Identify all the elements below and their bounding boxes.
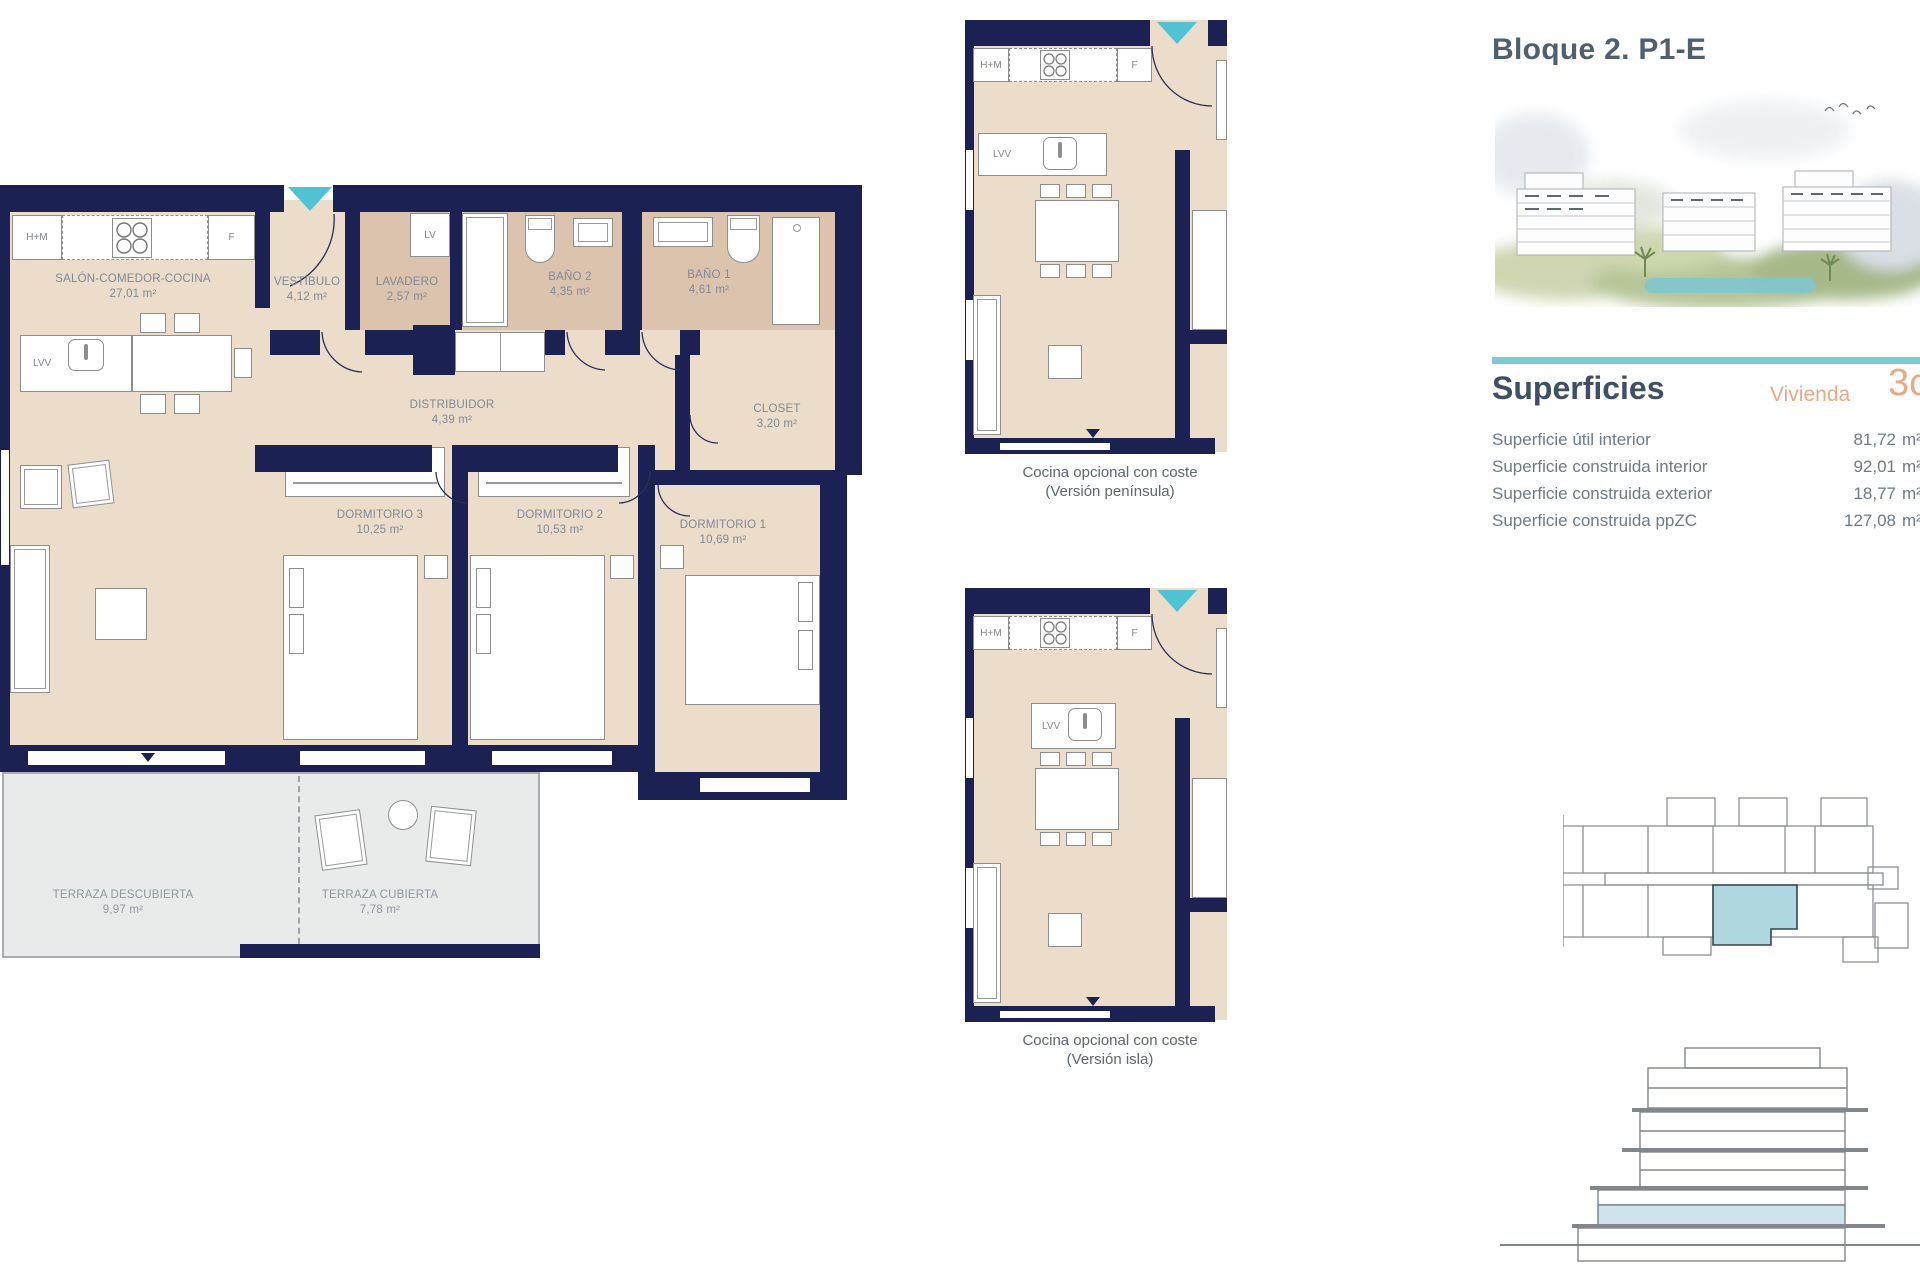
stove-icon [1040, 50, 1070, 80]
entrance-marker-icon [1157, 590, 1197, 612]
room-name: BAÑO 2 [548, 270, 591, 285]
chair [1040, 184, 1060, 198]
wall [1208, 588, 1227, 614]
window [966, 868, 973, 928]
room-area: 7,78 m² [322, 903, 439, 918]
washer-dryer-label: H+M [26, 232, 47, 243]
view-arrow-icon [141, 753, 155, 762]
stove-icon [112, 218, 152, 258]
coffee-table [1048, 345, 1082, 379]
washer-dryer-label: H+M [980, 60, 1001, 71]
wall [452, 445, 468, 772]
sofa [10, 545, 50, 693]
room-name: TERRAZA DESCUBIERTA [53, 888, 194, 903]
toilet [727, 215, 760, 263]
entrance-marker-icon [288, 187, 332, 211]
wall [1175, 898, 1227, 912]
room-label-vestibulo: VESTÍBULO4,12 m² [274, 275, 340, 305]
superficie-row-unit: m² [1902, 484, 1920, 504]
room-area: 10,69 m² [680, 533, 767, 548]
sofa [973, 863, 1001, 1003]
superficie-row-label: Superficie construida ppZC [1492, 511, 1697, 531]
chair [1040, 832, 1060, 846]
wardrobe-line [486, 482, 622, 484]
room-area: 4,35 m² [548, 285, 591, 300]
dining-table [1035, 200, 1119, 262]
fridge-label: F [228, 232, 234, 243]
pillow [798, 630, 813, 670]
caption-line1: Cocina opcional con coste [1022, 1031, 1197, 1050]
highlighted-floor [1598, 1205, 1845, 1226]
accent-rule [1492, 357, 1920, 364]
dining-table [1035, 768, 1119, 830]
page-title: Bloque 2. P1-E [1492, 33, 1706, 67]
option-plan-caption: Cocina opcional con coste (Versión isla) [1022, 1031, 1197, 1069]
window [966, 150, 973, 210]
room-label-lavadero: LAVADERO2,57 m² [376, 275, 439, 305]
chair [1040, 752, 1060, 766]
window [1, 450, 9, 565]
room-label-dorm2: DORMITORIO 210,53 m² [517, 508, 604, 538]
view-arrow-icon [1086, 429, 1100, 438]
nightstand [424, 555, 448, 579]
wall [1208, 20, 1227, 46]
bathtub [772, 217, 820, 325]
bathroom-sink [653, 217, 713, 247]
brochure-page: H+M F LVV LV [0, 0, 1920, 1280]
vivienda-value: 3c [1888, 362, 1920, 405]
wall [605, 330, 640, 355]
room-name: CLOSET [753, 402, 800, 417]
chair [1066, 752, 1086, 766]
coffee-table [1048, 913, 1082, 947]
washing-machine-label: LV [424, 230, 436, 241]
storage-doors [455, 332, 545, 372]
dishwasher-label: LVV [993, 149, 1011, 160]
washer-dryer-box: H+M [12, 215, 62, 260]
washer-dryer-box: H+M [973, 616, 1009, 650]
wall [345, 212, 360, 330]
window [1000, 1011, 1110, 1018]
room-area: 10,25 m² [337, 523, 424, 538]
wall [835, 185, 862, 475]
fridge-box: F [1117, 616, 1152, 650]
room-name: DORMITORIO 1 [680, 518, 767, 533]
washer-dryer-label: H+M [980, 628, 1001, 639]
fridge-box: F [208, 215, 255, 260]
washer-dryer-box: H+M [973, 48, 1009, 82]
wall [1175, 718, 1190, 1020]
wall [655, 470, 847, 485]
fridge-box: F [1117, 48, 1152, 82]
chair [140, 394, 166, 414]
wall [675, 355, 690, 480]
key-plan-diagram [1563, 785, 1920, 990]
caption-line1: Cocina opcional con coste [1022, 463, 1197, 482]
dining-table [132, 335, 232, 392]
room-name: VESTÍBULO [274, 275, 340, 290]
fixture [1216, 628, 1227, 708]
room-label-closet: CLOSET3,20 m² [753, 402, 800, 432]
toilet [525, 215, 555, 263]
fridge-label: F [1131, 628, 1137, 639]
sofa [973, 295, 1001, 435]
window [300, 751, 425, 765]
room-area: 3,20 m² [753, 417, 800, 432]
window [28, 751, 225, 765]
room-label-terraza-descubierta: TERRAZA DESCUBIERTA9,97 m² [53, 888, 194, 918]
room-name: SALÓN-COMEDOR-COCINA [55, 272, 210, 287]
room-name: DORMITORIO 3 [337, 508, 424, 523]
room-name: LAVADERO [376, 275, 439, 290]
chair [1066, 264, 1086, 278]
chair [1066, 184, 1086, 198]
window [700, 778, 810, 792]
superficie-row-label: Superficie útil interior [1492, 430, 1651, 450]
building-rendering [1495, 85, 1920, 307]
terrace-chair [314, 809, 367, 871]
room-area: 4,61 m² [687, 283, 730, 298]
chair [174, 313, 200, 333]
sink-icon [1068, 708, 1102, 741]
wall [965, 588, 1150, 614]
dishwasher-label: LVV [33, 358, 51, 369]
room-area: 10,53 m² [517, 523, 604, 538]
room-label-dorm1: DORMITORIO 110,69 m² [680, 518, 767, 548]
vivienda-label: Vivienda [1770, 383, 1850, 407]
superficie-row-value: 18,77 [1768, 484, 1896, 504]
room-label-dorm3: DORMITORIO 310,25 m² [337, 508, 424, 538]
room-name: TERRAZA CUBIERTA [322, 888, 439, 903]
room-area: 4,39 m² [410, 413, 495, 428]
room-label-distribuidor: DISTRIBUIDOR4,39 m² [410, 398, 495, 428]
washing-machine-box: LV [410, 213, 450, 257]
highlighted-unit [1713, 885, 1797, 945]
wall [450, 212, 462, 330]
room-area: 4,12 m² [274, 290, 340, 305]
superficie-row-label: Superficie construida exterior [1492, 484, 1712, 504]
superficie-row-value: 92,01 [1768, 457, 1896, 477]
nightstand [610, 555, 634, 579]
room-label-bano1: BAÑO 14,61 m² [687, 268, 730, 298]
wardrobe-line [293, 482, 437, 484]
coffee-table [95, 588, 147, 640]
chair [140, 313, 166, 333]
chair [1066, 832, 1086, 846]
bathroom-sink [573, 218, 613, 247]
option-plan-caption: Cocina opcional con coste (Versión penín… [1022, 463, 1197, 501]
pillow [289, 614, 304, 654]
wall [270, 330, 320, 355]
pillow [476, 614, 491, 654]
chair [1092, 752, 1112, 766]
superficie-row-unit: m² [1902, 511, 1920, 531]
pillow [476, 568, 491, 608]
superficie-row-value: 127,08 [1768, 511, 1896, 531]
caption-line2: (Versión península) [1022, 482, 1197, 501]
window [966, 718, 973, 778]
wall [413, 325, 455, 375]
entrance-marker-icon [1157, 22, 1197, 44]
armchair [67, 460, 114, 509]
room-label-salon: SALÓN-COMEDOR-COCINA27,01 m² [55, 272, 210, 302]
superficie-row-unit: m² [1902, 457, 1920, 477]
chair [234, 348, 252, 378]
terrace-divider [298, 776, 300, 954]
wall [965, 20, 1150, 46]
view-arrow-icon [1086, 997, 1100, 1006]
wall [255, 445, 432, 472]
wall [0, 185, 284, 212]
room-area: 2,57 m² [376, 290, 439, 305]
wall [638, 445, 655, 800]
superficie-row-label: Superficie construida interior [1492, 457, 1707, 477]
wall [680, 330, 700, 355]
wall [1175, 330, 1227, 344]
pillow [289, 568, 304, 608]
sink-icon [1043, 137, 1077, 170]
wall [622, 185, 642, 330]
nightstand [660, 545, 684, 569]
pool [1645, 278, 1815, 293]
elevation-diagram [1500, 1045, 1920, 1280]
wall [545, 330, 565, 355]
room-area: 27,01 m² [55, 287, 210, 302]
room-label-terraza-cubierta: TERRAZA CUBIERTA7,78 m² [322, 888, 439, 918]
bed [1192, 778, 1227, 898]
window [966, 300, 973, 360]
bed [1192, 210, 1227, 330]
room-area: 9,97 m² [53, 903, 194, 918]
wall [820, 475, 847, 800]
room-label-bano2: BAÑO 24,35 m² [548, 270, 591, 300]
pillow [798, 582, 813, 622]
chair [1040, 264, 1060, 278]
superficie-row-value: 81,72 [1768, 430, 1896, 450]
shower [462, 213, 508, 327]
chair [1092, 184, 1112, 198]
room-name: DORMITORIO 2 [517, 508, 604, 523]
window [1000, 443, 1110, 450]
superficie-row-unit: m² [1902, 430, 1920, 450]
wall [255, 212, 270, 308]
wall [365, 330, 413, 355]
caption-line2: (Versión isla) [1022, 1050, 1197, 1069]
terrace-table [388, 800, 418, 830]
superficies-heading: Superficies [1492, 370, 1665, 407]
room-name: DISTRIBUIDOR [410, 398, 495, 413]
armchair [20, 465, 62, 509]
fridge-label: F [1131, 60, 1137, 71]
stove-icon [1040, 618, 1070, 648]
chair [174, 394, 200, 414]
chair [1092, 264, 1112, 278]
fixture [1216, 60, 1227, 140]
wall [465, 445, 618, 472]
wall [333, 185, 862, 212]
chair [1092, 832, 1112, 846]
dishwasher-label: LVV [1042, 721, 1060, 732]
wall [1175, 150, 1190, 452]
window [492, 751, 612, 765]
wall [240, 944, 540, 958]
room-name: BAÑO 1 [687, 268, 730, 283]
terrace-chair [425, 806, 477, 867]
sink-icon [68, 339, 104, 371]
